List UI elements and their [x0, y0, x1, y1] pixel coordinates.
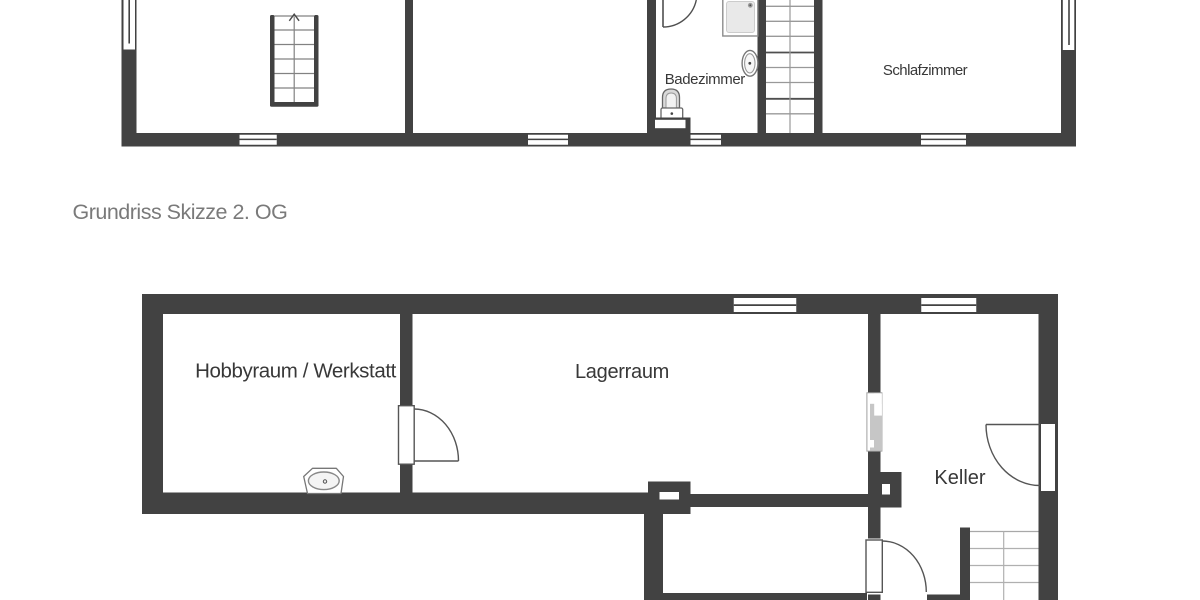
svg-text:Lagerraum: Lagerraum — [575, 361, 669, 383]
svg-text:Badezimmer: Badezimmer — [665, 71, 746, 88]
svg-text:Keller: Keller — [934, 467, 985, 489]
svg-text:Schlafzimmer: Schlafzimmer — [883, 62, 968, 79]
svg-text:Hobbyraum / Werkstatt: Hobbyraum / Werkstatt — [195, 360, 397, 383]
svg-text:Grundriss Skizze 2. OG: Grundriss Skizze 2. OG — [73, 200, 288, 224]
